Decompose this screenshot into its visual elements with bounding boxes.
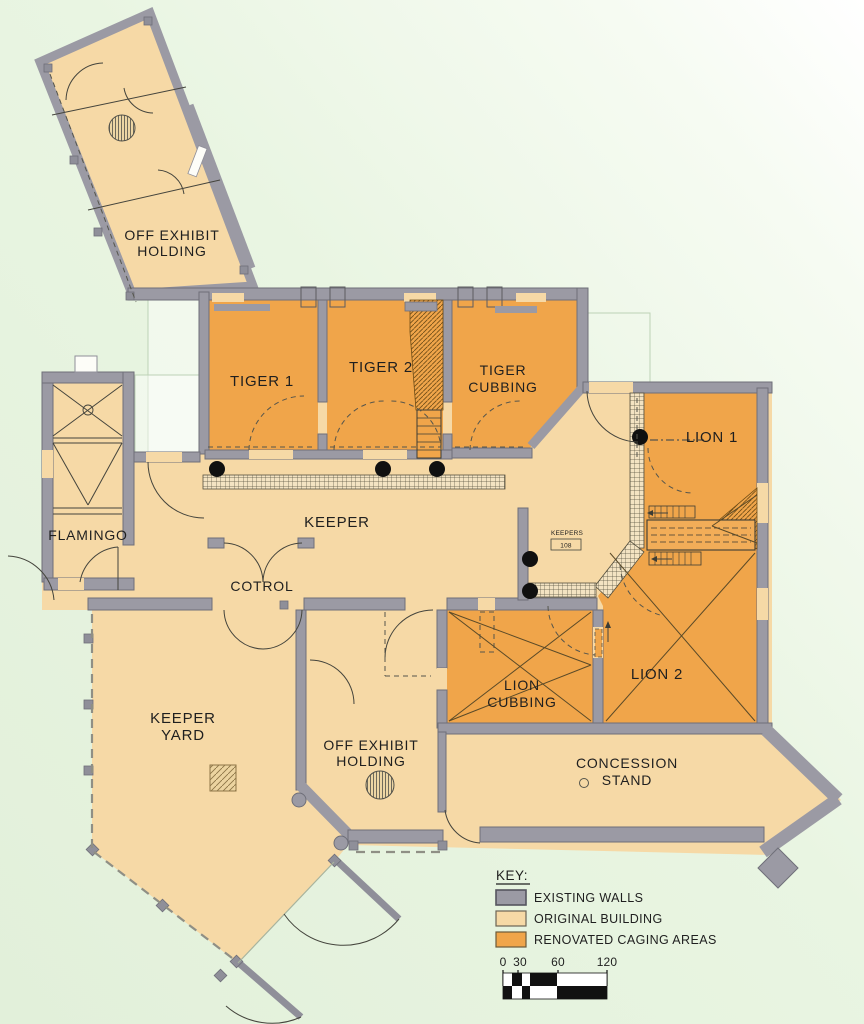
label-keeper: KEEPER	[304, 514, 370, 531]
scale-bar-blocks	[503, 973, 607, 999]
drain-symbol	[366, 771, 394, 799]
label-off-exhibit-bottom-2: HOLDING	[336, 753, 405, 769]
round-column	[334, 836, 348, 850]
scale-tick-60: 60	[551, 955, 565, 969]
legend-swatch-original-building	[496, 911, 526, 926]
label-off-exhibit-bottom-1: OFF EXHIBIT	[323, 737, 418, 753]
window-sill	[495, 306, 537, 313]
scale-bar: 0 30 60 120	[500, 955, 618, 999]
tiger2-chute-hatch	[410, 300, 443, 410]
scale-tick-0: 0	[500, 955, 507, 969]
window-sill	[214, 304, 270, 311]
label-tiger-1: TIGER 1	[230, 373, 294, 390]
drain-symbol	[109, 115, 135, 141]
floor-plan-page: OFF EXHIBIT HOLDING TIGER 1 TIGER 2 TIGE…	[0, 0, 864, 1024]
label-concession-1: CONCESSION	[576, 755, 678, 771]
label-control: COTROL	[230, 578, 293, 594]
pilaster	[75, 356, 97, 372]
scale-tick-30: 30	[513, 955, 527, 969]
legend-swatch-existing-walls	[496, 890, 526, 905]
label-off-exhibit-top-1: OFF EXHIBIT	[124, 227, 219, 243]
round-column	[292, 793, 306, 807]
label-tiger-cubbing-1: TIGER	[480, 362, 527, 378]
label-keepers-office: KEEPERS	[551, 530, 584, 537]
yard-pad	[210, 765, 236, 791]
label-lion-2: LION 2	[631, 666, 683, 683]
label-tiger-cubbing-2: CUBBING	[468, 379, 537, 395]
label-lion-cubbing-2: CUBBING	[487, 694, 556, 710]
label-tiger-2: TIGER 2	[349, 359, 413, 376]
legend-title: KEY:	[496, 868, 528, 883]
legend-swatch-renovated-caging	[496, 932, 526, 947]
label-keeper-yard-1: KEEPER	[150, 710, 216, 727]
label-lion-cubbing-1: LION	[504, 677, 540, 693]
label-off-exhibit-top-2: HOLDING	[137, 243, 206, 259]
label-concession-2: STAND	[602, 772, 652, 788]
legend-label-renovated-caging: RENOVATED CAGING AREAS	[534, 933, 717, 947]
label-room-number: 108	[560, 543, 572, 550]
legend-label-existing-walls: EXISTING WALLS	[534, 891, 643, 905]
label-flamingo: FLAMINGO	[48, 527, 128, 543]
floor-plan-drawing: OFF EXHIBIT HOLDING TIGER 1 TIGER 2 TIGE…	[0, 0, 864, 1024]
label-keeper-yard-2: YARD	[161, 727, 205, 744]
legend-label-original-building: ORIGINAL BUILDING	[534, 912, 663, 926]
label-lion-1: LION 1	[686, 429, 738, 446]
scale-tick-120: 120	[597, 955, 618, 969]
